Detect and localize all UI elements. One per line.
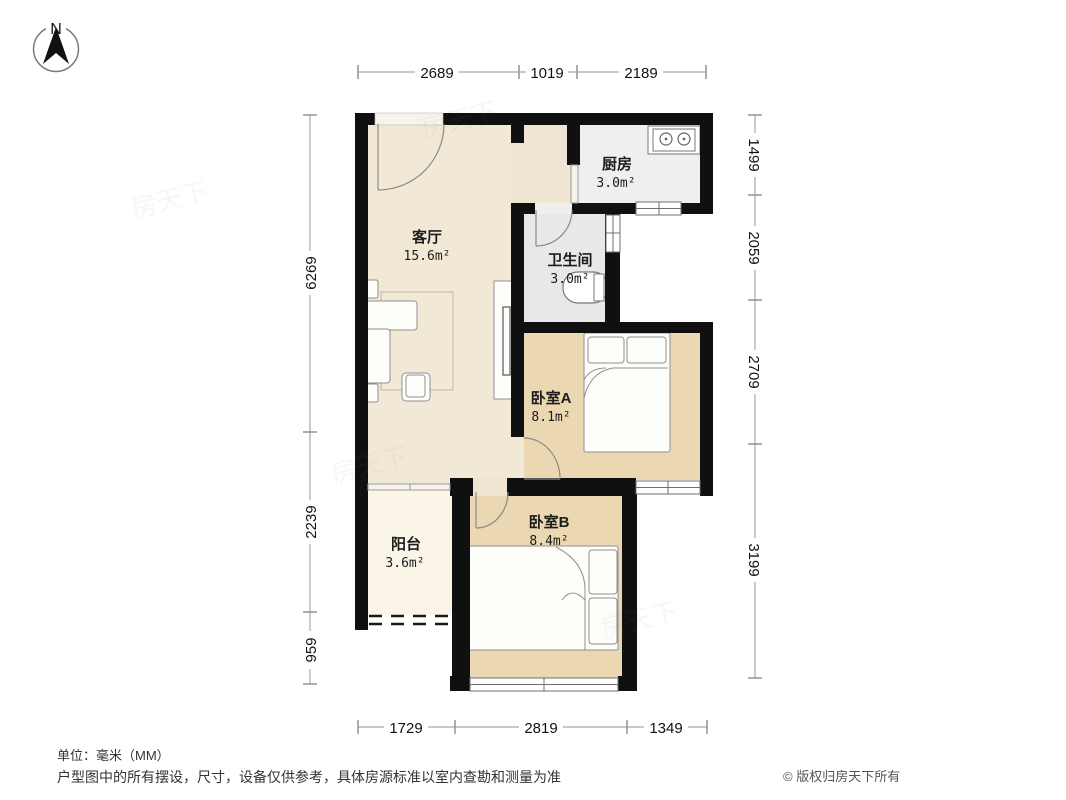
dim-left-2: 2239 [303,505,320,538]
dim-left-1: 6269 [303,256,320,289]
unit-note: 单位：毫米（MM） [57,745,170,764]
dim-top-3: 2189 [624,65,657,82]
dim-top-2: 1019 [530,65,563,82]
tv-icon [503,307,510,375]
balcony-rail [369,616,451,624]
room-area-kitchen: 3.0m² [596,176,635,191]
room-label-bedroom-a: 卧室A [531,389,572,407]
dim-right-4: 3199 [745,543,762,576]
room-area-bedroom-b: 8.4m² [529,534,568,549]
room-label-balcony: 阳台 [391,535,421,553]
dim-top-1: 2689 [420,65,453,82]
bedroom-a-window [636,481,700,494]
armchair [402,373,430,401]
balcony-slider [368,484,450,490]
floorplan-svg: 客厅 15.6m² 厨房 3.0m² 卫生间 3.0m² 卧室A 8.1m² 卧… [0,0,1066,800]
pillow [627,337,666,363]
room-label-kitchen: 厨房 [602,155,632,173]
compass: N [34,18,79,72]
kitchen-window [636,202,681,215]
pillow [589,598,617,644]
room-label-bathroom: 卫生间 [547,251,592,269]
bedroom-b-window [470,678,618,691]
dimension-left: 6269 2239 959 [301,115,320,684]
dim-right-2: 2059 [745,231,762,264]
room-area-bathroom: 3.0m² [550,272,589,287]
dim-bottom-1: 1729 [389,720,422,737]
bathroom-window [606,215,620,252]
pillow [588,337,624,363]
copyright-text: © 版权归房天下所有 [783,766,900,785]
stove-icon [648,126,700,154]
room-area-living: 15.6m² [404,249,451,264]
bed-b [466,546,618,650]
room-area-balcony: 3.6m² [385,556,424,571]
dimension-top: 2689 1019 2189 [358,63,706,82]
kitchen-slider [571,165,578,203]
disclaimer-text: 户型图中的所有摆设，尺寸，设备仅供参考，具体房源标准以室内查勘和测量为准 [57,767,561,787]
pillow [589,550,617,594]
room-area-bedroom-a: 8.1m² [531,410,570,425]
dim-bottom-3: 1349 [649,720,682,737]
dim-right-3: 2709 [745,355,762,388]
dimension-bottom: 1729 2819 1349 [358,718,707,737]
room-label-bedroom-b: 卧室B [529,513,570,531]
dim-bottom-2: 2819 [524,720,557,737]
room-label-living: 客厅 [411,228,442,246]
bed-a [584,333,670,452]
tv-stand [494,281,512,399]
dim-left-3: 959 [303,637,320,662]
dim-right-1: 1499 [745,138,762,171]
compass-n-label: N [50,21,62,38]
floorplan-page: 客厅 15.6m² 厨房 3.0m² 卫生间 3.0m² 卧室A 8.1m² 卧… [0,0,1066,800]
dimension-right: 1499 2059 2709 3199 [745,115,764,678]
